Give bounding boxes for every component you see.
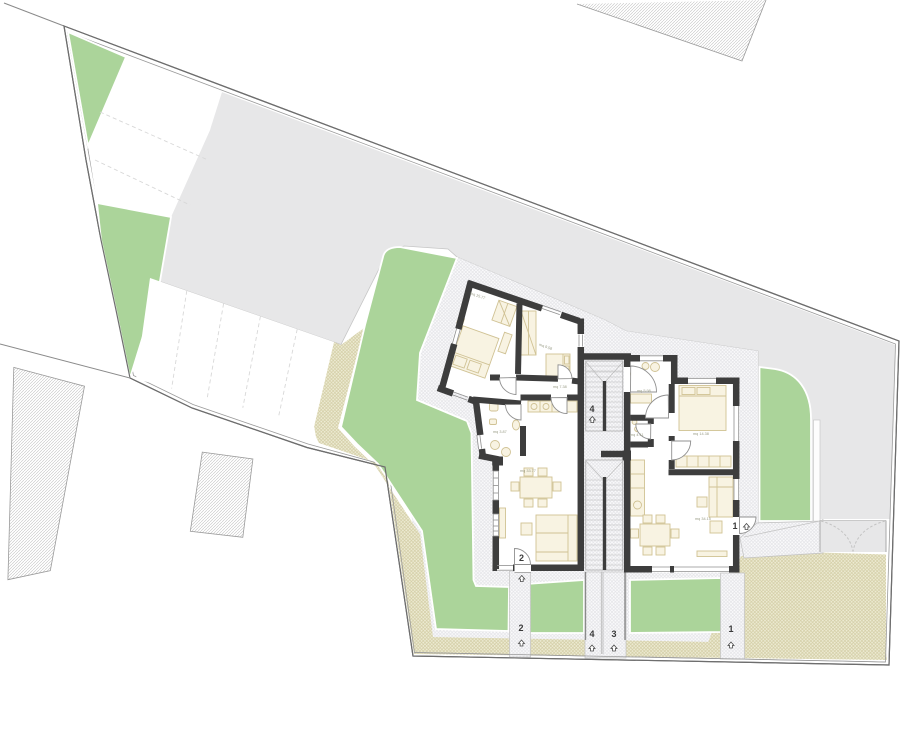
svg-text:3: 3	[611, 629, 616, 639]
svg-text:1: 1	[728, 624, 733, 634]
svg-text:1: 1	[732, 521, 737, 531]
svg-text:mq 34.15: mq 34.15	[695, 517, 711, 521]
svg-text:mq 4.11: mq 4.11	[630, 433, 643, 437]
svg-text:mq 3.87: mq 3.87	[493, 430, 507, 434]
svg-text:mq 5.98: mq 5.98	[637, 389, 651, 393]
svg-text:2: 2	[518, 623, 523, 633]
svg-text:mq 7.38: mq 7.38	[553, 385, 567, 389]
svg-text:4: 4	[589, 404, 594, 414]
svg-text:mq 14.38: mq 14.38	[693, 432, 709, 436]
svg-text:2: 2	[519, 553, 524, 563]
svg-text:mq 33.77: mq 33.77	[520, 469, 536, 473]
svg-text:4: 4	[589, 629, 594, 639]
